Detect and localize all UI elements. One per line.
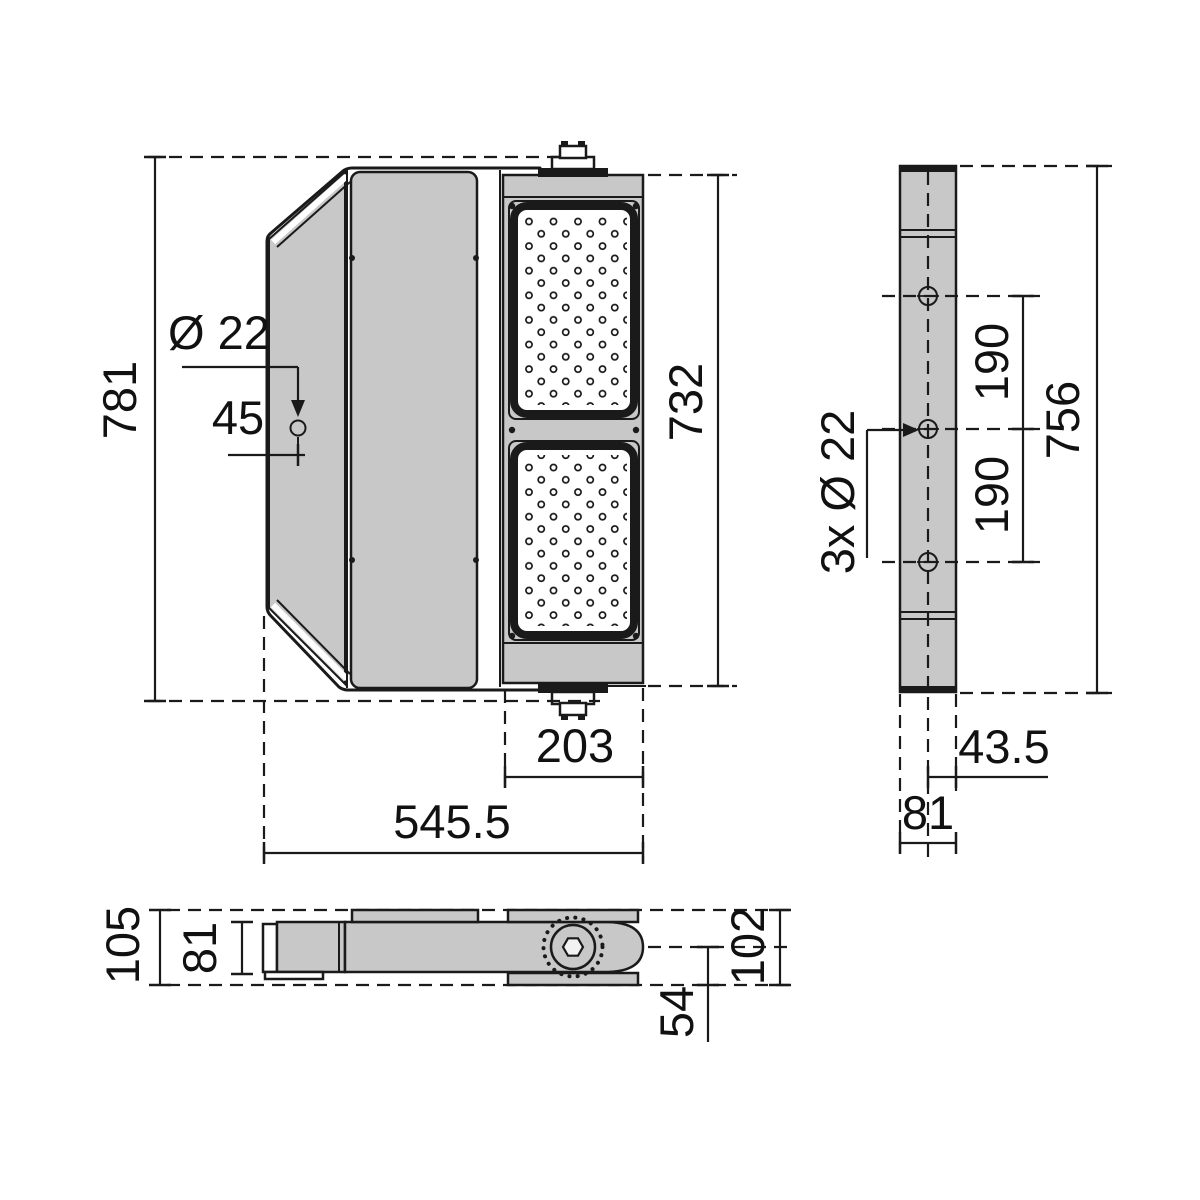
dim-bracket-height: 756 [1036,381,1089,459]
top-view [167,910,790,985]
dim-body-depth: 81 [173,922,226,974]
dim-pivot-to-face: 54 [650,986,703,1038]
dim-overall-width: 545.5 [393,795,511,848]
hex-bolt [563,938,583,955]
bracket-plate-bottom [508,973,638,985]
led-dots-upper [522,215,627,405]
floodlight-dimension-drawing: 781 732 Ø 22 45 203 545.5 [0,0,1200,1200]
dim-overall-height: 781 [93,361,146,439]
dim-mount-hole-diameter: Ø 22 [168,306,270,359]
led-dots-lower [522,455,627,626]
dim-hole-spacing-lower: 190 [965,456,1018,534]
led-module-lower [509,441,639,640]
dim-hole-to-front: 43.5 [958,720,1049,773]
led-module-upper [509,201,639,419]
dim-led-frame-width: 203 [536,719,614,772]
dim-side-depth: 81 [902,786,954,839]
rear-block [277,922,345,972]
top-stud [538,141,608,177]
technical-drawing-page: 781 732 Ø 22 45 203 545.5 [0,0,1200,1200]
dim-mount-hole-offset: 45 [212,391,264,444]
side-dimensions: 190 190 756 3x Ø 22 43.5 81 [811,166,1112,858]
dim-hole-spacing-upper: 190 [965,323,1018,401]
top-rail [352,910,478,922]
rear-edge-cap [263,924,277,972]
front-view [266,141,646,720]
bracket-plate-top [508,910,638,922]
dim-overall-depth: 105 [96,906,149,984]
housing-back-face [269,172,345,684]
front-plate [351,172,477,688]
dim-bracket-depth: 102 [721,907,774,985]
dim-led-frame-height: 732 [659,363,712,441]
dim-holes-callout: 3x Ø 22 [811,410,864,575]
